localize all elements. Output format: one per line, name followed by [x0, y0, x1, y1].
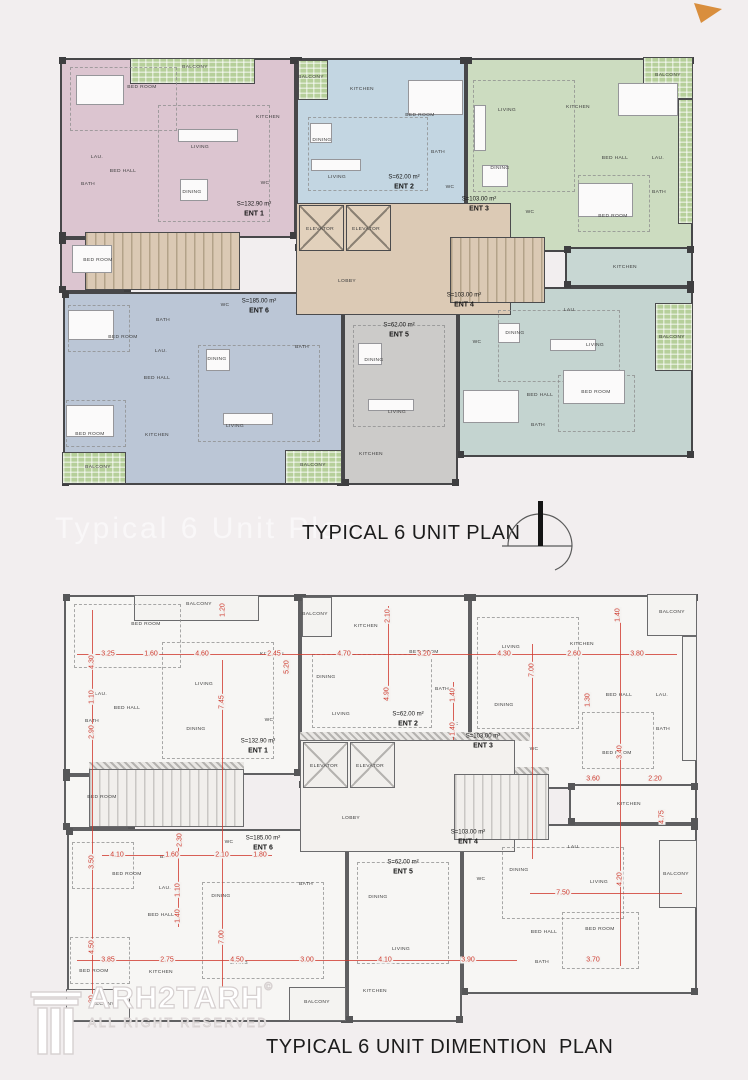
- room-label: LOBBY: [338, 279, 356, 284]
- dimension-label: 4.75: [659, 809, 666, 825]
- column-block: [62, 291, 69, 298]
- logo-name: ARH2TARH©: [88, 982, 273, 1013]
- room-label: WC: [477, 877, 486, 882]
- room-label: BED ROOM: [108, 335, 137, 340]
- room-label: DINING: [186, 727, 205, 732]
- room-label: BATH: [656, 727, 670, 732]
- dimension-label: 2.20: [647, 776, 663, 783]
- logo-rights: ALL RIGHT RESERVED: [88, 1016, 273, 1030]
- balcony: [678, 99, 693, 224]
- room-label: BED ROOM: [127, 85, 156, 90]
- dimension-label: 3.25: [100, 651, 116, 658]
- dimension-label: 7.50: [555, 890, 571, 897]
- room-label: BED HALL: [110, 169, 136, 174]
- dimension-line: [222, 660, 223, 1008]
- typical-6-unit-dimension-plan: BALCONYBED ROOMKITCHENLIVINGDININGBED HA…: [62, 592, 697, 1014]
- unit-entry-label: S=185.00 m²ENT 6: [242, 299, 277, 316]
- room-label: BATH: [535, 960, 549, 965]
- room-label: KITCHEN: [256, 115, 280, 120]
- dimension-label: 4.50: [229, 957, 245, 964]
- unit-entry-label: S=132.90 m²ENT 1: [241, 739, 276, 756]
- furniture: [563, 370, 625, 404]
- room-label: LIVING: [392, 947, 410, 952]
- logo: ARH2TARH© ALL RIGHT RESERVED: [30, 982, 273, 1060]
- dimension-label: 2.60: [566, 651, 582, 658]
- unit-entry-label: S=103.00 m²ENT 3: [466, 734, 501, 751]
- column-block: [691, 988, 698, 995]
- dimension-label: 1.10: [89, 689, 96, 705]
- dimension-label: 3.20: [416, 651, 432, 658]
- dimension-line: [102, 855, 272, 856]
- balcony: [302, 597, 332, 637]
- dimension-label: 4.50: [89, 939, 96, 955]
- dimension-label: 5.20: [284, 659, 291, 675]
- room-label: LIVING: [498, 108, 516, 113]
- room-label: BATH: [295, 345, 309, 350]
- column-block: [59, 237, 66, 244]
- logo-text: ARH2TARH© ALL RIGHT RESERVED: [88, 982, 273, 1030]
- room-label: KITCHEN: [145, 433, 169, 438]
- north-compass-icon: [500, 494, 582, 574]
- room-label: WC: [221, 303, 230, 308]
- room-label: DINING: [316, 675, 335, 680]
- room-label: LIVING: [502, 645, 520, 650]
- dimension-label: 2.90: [89, 724, 96, 740]
- furniture: [463, 390, 519, 423]
- room-label: BALCONY: [182, 65, 208, 70]
- room-label: BED ROOM: [581, 390, 610, 395]
- column-block: [564, 281, 571, 288]
- room-label: LAU.: [159, 886, 171, 891]
- dimension-label: 2.10: [385, 608, 392, 624]
- dimension-label: 1.80: [252, 852, 268, 859]
- dimension-label: 7.45: [219, 694, 226, 710]
- room-label: ELEVATOR: [356, 764, 384, 769]
- dimension-label: 4.70: [336, 651, 352, 658]
- column-block: [687, 281, 694, 288]
- room-label: LIVING: [332, 712, 350, 717]
- room-label: KITCHEN: [350, 87, 374, 92]
- dimension-label: 1.40: [450, 721, 457, 737]
- dimension-label: 3.40: [617, 744, 624, 760]
- column-block: [59, 57, 66, 64]
- room-label: LIVING: [586, 343, 604, 348]
- dimension-label: 3.70: [585, 957, 601, 964]
- dimension-plan-title: TYPICAL 6 UNIT DIMENTION PLAN: [266, 1036, 613, 1059]
- dimension-label: 4.10: [109, 852, 125, 859]
- dimension-label: 4.20: [617, 871, 624, 887]
- unit-entry-label: S=132.90 m²ENT 1: [237, 202, 272, 219]
- room-label: BALCONY: [298, 75, 324, 80]
- room-label: LAU.: [95, 692, 107, 697]
- room-label: ELEVATOR: [306, 227, 334, 232]
- room-label: WC: [530, 747, 539, 752]
- dimension-label: 2.30: [177, 832, 184, 848]
- balcony: [298, 60, 328, 100]
- room-label: BALCONY: [659, 335, 685, 340]
- column-block: [691, 818, 698, 825]
- room-label: WC: [265, 718, 274, 723]
- room-label: BATH: [652, 190, 666, 195]
- typical-6-unit-plan: BALCONYBED ROOMKITCHENLIVINGDININGBED HA…: [58, 55, 693, 487]
- column-block: [564, 246, 571, 253]
- furniture: [311, 159, 361, 171]
- dimension-label: 3.85: [100, 957, 116, 964]
- room-label: BATH: [431, 150, 445, 155]
- room-label: BATH: [299, 882, 313, 887]
- room-label: KITCHEN: [613, 265, 637, 270]
- room-label: BED HALL: [114, 706, 140, 711]
- column-block: [456, 1016, 463, 1023]
- room-label: LIVING: [191, 145, 209, 150]
- room-label: DINING: [207, 357, 226, 362]
- dimension-label: 7.00: [529, 662, 536, 678]
- room-label: BED HALL: [531, 930, 557, 935]
- room-label: LAU.: [155, 349, 167, 354]
- column-block: [457, 451, 464, 458]
- furniture: [408, 80, 463, 115]
- column-block: [568, 783, 575, 790]
- column-block: [63, 774, 70, 781]
- room-label: BED ROOM: [79, 969, 108, 974]
- dimension-line: [77, 960, 517, 961]
- room-label: LAU.: [656, 693, 668, 698]
- room-label: BED ROOM: [83, 258, 112, 263]
- room-label: DINING: [182, 190, 201, 195]
- column-block: [63, 594, 70, 601]
- room-label: DINING: [368, 895, 387, 900]
- room-label: BALCONY: [302, 612, 328, 617]
- room-label: BALCONY: [186, 602, 212, 607]
- room-label: LIVING: [590, 880, 608, 885]
- room-label: LIVING: [328, 175, 346, 180]
- column-block: [461, 988, 468, 995]
- dimension-label: 1.40: [175, 908, 182, 924]
- furniture: [178, 129, 238, 142]
- room-zone: [72, 842, 134, 889]
- room-zone: [582, 712, 654, 769]
- furniture: [68, 310, 114, 340]
- room-label: LAU.: [652, 156, 664, 161]
- room-label: BATH: [531, 423, 545, 428]
- dimension-label: 4.10: [377, 957, 393, 964]
- copyright-mark: ©: [264, 981, 273, 993]
- plan-title: TYPICAL 6 UNIT PLAN: [302, 522, 520, 545]
- room-label: DINING: [364, 358, 383, 363]
- dimension-line: [77, 654, 677, 655]
- dimension-label: 3.50: [89, 854, 96, 870]
- dimension-line: [620, 608, 621, 966]
- room-label: KITCHEN: [363, 989, 387, 994]
- dimension-label: 3.80: [629, 651, 645, 658]
- dimension-label: 2.45: [266, 651, 282, 658]
- dimension-label: 4.30: [496, 651, 512, 658]
- balcony: [647, 594, 697, 636]
- column-block: [469, 594, 476, 601]
- room-label: LAU.: [564, 308, 576, 313]
- unit-entry-label: S=185.00 m²ENT 6: [246, 836, 281, 853]
- room-label: BALCONY: [655, 73, 681, 78]
- unit-entry-label: S=103.00 m²ENT 4: [447, 293, 482, 310]
- room-label: LOBBY: [342, 816, 360, 821]
- room-label: DINING: [505, 331, 524, 336]
- room-label: BED ROOM: [112, 872, 141, 877]
- dimension-label: 1.10: [175, 882, 182, 898]
- room-label: DINING: [509, 868, 528, 873]
- room-label: KITCHEN: [149, 970, 173, 975]
- column-block: [568, 818, 575, 825]
- logo-brand: ARH2TARH: [88, 980, 264, 1015]
- furniture: [578, 183, 633, 217]
- room-label: BED HALL: [148, 913, 174, 918]
- room-label: BATH: [156, 318, 170, 323]
- column-block: [66, 828, 73, 835]
- dimension-label: 4.30: [89, 654, 96, 670]
- room-label: BED ROOM: [75, 432, 104, 437]
- room-label: LAU.: [568, 845, 580, 850]
- room-label: WC: [526, 210, 535, 215]
- room-label: DINING: [494, 703, 513, 708]
- dimension-line: [530, 893, 682, 894]
- dimension-label: 2.10: [214, 852, 230, 859]
- furniture: [618, 83, 678, 116]
- unit-entry-label: S=62.00 m²ENT 2: [392, 712, 423, 729]
- room-label: BED HALL: [602, 156, 628, 161]
- room-label: KITCHEN: [354, 624, 378, 629]
- dimension-label: 1.40: [615, 607, 622, 623]
- column-icon: [30, 982, 82, 1060]
- unit-entry-label: S=103.00 m²ENT 3: [462, 197, 497, 214]
- room-label: WC: [473, 340, 482, 345]
- room-label: DINING: [211, 894, 230, 899]
- room-label: BED HALL: [144, 376, 170, 381]
- dimension-label: 2.75: [159, 957, 175, 964]
- dimension-label: 1.60: [143, 651, 159, 658]
- dimension-label: 4.90: [384, 686, 391, 702]
- unit-entry-label: S=62.00 m²ENT 5: [387, 860, 418, 877]
- room-label: BED ROOM: [405, 113, 434, 118]
- room-label: ELEVATOR: [352, 227, 380, 232]
- room-label: BED HALL: [606, 693, 632, 698]
- room-label: BALCONY: [85, 465, 111, 470]
- room-label: WC: [261, 181, 270, 186]
- column-block: [687, 451, 694, 458]
- room-label: KITCHEN: [359, 452, 383, 457]
- room-label: LIVING: [388, 410, 406, 415]
- room-label: WC: [446, 185, 455, 190]
- room-label: BATH: [81, 182, 95, 187]
- room-label: BED ROOM: [585, 927, 614, 932]
- room-label: BALCONY: [300, 463, 326, 468]
- dimension-label: 7.00: [219, 929, 226, 945]
- room-label: BALCONY: [304, 1000, 330, 1005]
- dimension-label: 1.40: [450, 687, 457, 703]
- furniture: [474, 105, 486, 151]
- dimension-label: 3.00: [299, 957, 315, 964]
- unit-entry-label: S=103.00 m²ENT 4: [451, 830, 486, 847]
- room-label: DINING: [490, 166, 509, 171]
- room-label: BALCONY: [659, 610, 685, 615]
- room-label: LAU.: [91, 155, 103, 160]
- room-label: KITCHEN: [566, 105, 590, 110]
- dimension-label: 1.20: [220, 602, 227, 618]
- balcony: [682, 636, 697, 761]
- room-label: DINING: [312, 138, 331, 143]
- room-label: LIVING: [195, 682, 213, 687]
- corner-marker: [694, 3, 722, 23]
- dimension-label: 1.30: [585, 692, 592, 708]
- room-label: BED ROOM: [131, 622, 160, 627]
- room-label: ELEVATOR: [310, 764, 338, 769]
- room-label: BATH: [435, 687, 449, 692]
- dimension-label: 3.60: [585, 776, 601, 783]
- room-label: BALCONY: [663, 872, 689, 877]
- room-label: WC: [225, 840, 234, 845]
- room-label: LIVING: [226, 424, 244, 429]
- furniture: [76, 75, 124, 105]
- column-block: [465, 57, 472, 64]
- room-label: KITCHEN: [570, 642, 594, 647]
- room-label: BED HALL: [527, 393, 553, 398]
- dimension-label: 3.90: [460, 957, 476, 964]
- room-label: BED ROOM: [598, 214, 627, 219]
- column-block: [687, 246, 694, 253]
- dimension-label: 1.60: [164, 852, 180, 859]
- dimension-label: 4.60: [194, 651, 210, 658]
- column-block: [691, 783, 698, 790]
- unit-entry-label: S=62.00 m²ENT 5: [383, 323, 414, 340]
- unit-entry-label: S=62.00 m²ENT 2: [388, 175, 419, 192]
- column-block: [452, 479, 459, 486]
